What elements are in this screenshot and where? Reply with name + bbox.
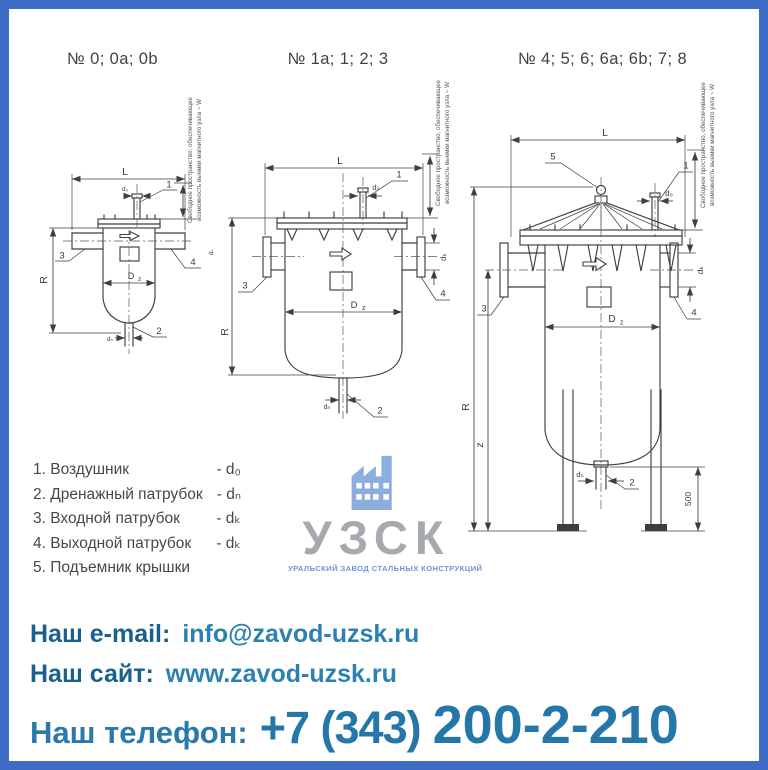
legend-item-2: 2. Дренажный патрубок - dₙ xyxy=(33,483,241,508)
drain-nozzle: dₙ 2 xyxy=(576,461,639,489)
uzsk-logo: УЗСК УРАЛЬСКИЙ ЗАВОД СТАЛЬНЫХ КОНСТРУКЦИ… xyxy=(288,451,460,573)
note-line1: Свободное пространство, обеспечивающее xyxy=(435,79,442,206)
flow-arrow xyxy=(120,232,139,241)
drain-nozzle: dₙ 2 xyxy=(107,323,167,346)
callout-4: 4 xyxy=(440,289,445,300)
phone-label: Наш телефон: xyxy=(30,715,248,751)
dim-label-L: L xyxy=(602,127,608,139)
free-space-note: Свободное пространство, обеспечивающее в… xyxy=(682,81,716,230)
sight-glass xyxy=(120,247,139,261)
site-value: www.zavod-uzsk.ru xyxy=(166,660,397,689)
callout-3: 3 xyxy=(242,281,247,292)
drawing1-title: № 0; 0a; 0b xyxy=(20,50,205,69)
vent-nozzle: d₀ 1 xyxy=(122,180,177,229)
dim-label-z: z xyxy=(474,442,486,447)
parts-legend: 1. Воздушник - d₀ 2. Дренажный патрубок … xyxy=(33,458,241,581)
vent-nozzle: d₀ 1 xyxy=(344,170,408,230)
dim-label-D: D xyxy=(351,300,358,311)
dim-R: R xyxy=(219,218,336,375)
callout-3: 3 xyxy=(59,251,64,262)
dim-label-D-sub: z xyxy=(620,320,624,327)
phone-prefix: +7 (343) xyxy=(260,702,421,754)
legend-item-text: 3. Входной патрубок xyxy=(33,507,180,532)
phone-number: 200-2-210 xyxy=(433,694,679,756)
phone-row: Наш телефон: +7 (343) 200-2-210 xyxy=(30,694,679,756)
sight-glass xyxy=(587,287,611,307)
logo-name: УЗСК xyxy=(293,514,460,561)
legend-item-dim: - dₖ xyxy=(216,507,241,532)
callout-2: 2 xyxy=(377,406,382,417)
outlet-nozzle: dₖ 4 xyxy=(650,238,705,319)
inlet-nozzle: 3 xyxy=(238,237,304,292)
legend-item-1: 1. Воздушник - d₀ xyxy=(33,458,241,483)
drawing-filter-small: L Свободное пространство, обеспечивающее… xyxy=(25,80,220,380)
site-label: Наш сайт: xyxy=(30,660,154,689)
dim-label-dk: dₖ xyxy=(695,265,705,274)
dim-label-R: R xyxy=(460,403,472,411)
logo-tagline: УРАЛЬСКИЙ ЗАВОД СТАЛЬНЫХ КОНСТРУКЦИЙ xyxy=(288,564,460,573)
note-line2: возможность выемки магнитного узла ~ W xyxy=(444,82,451,204)
email-value: info@zavod-uzsk.ru xyxy=(182,620,419,649)
dim-label-d0: d₀ xyxy=(372,183,379,192)
legend-item-text: 5. Подъемник крышки xyxy=(33,556,190,581)
vessel-body xyxy=(285,173,402,419)
legend-item-3: 3. Входной патрубок - dₖ xyxy=(33,507,241,532)
dim-label-D-sub: z xyxy=(362,305,366,312)
dim-label-d0: d₀ xyxy=(122,186,129,193)
flow-arrow xyxy=(330,248,351,260)
dim-label-L: L xyxy=(122,166,128,178)
dim-R: R xyxy=(38,228,121,333)
dim-Dz: D z xyxy=(545,314,660,327)
callout-4: 4 xyxy=(691,308,696,319)
lid-flange xyxy=(98,215,160,228)
callout-4: 4 xyxy=(190,257,195,268)
factory-icon xyxy=(346,451,402,513)
dim-label-dk: dₖ xyxy=(209,249,215,255)
inlet-nozzle: 3 xyxy=(477,243,562,315)
drawing-filter-large: L Свободное пространство, обеспечивающее… xyxy=(465,57,765,572)
callout-5: 5 xyxy=(550,152,555,163)
callout-1: 1 xyxy=(396,170,401,181)
drawing-filter-medium: L Свободное пространство, обеспечивающее… xyxy=(224,57,464,429)
legend-item-text: 4. Выходной патрубок xyxy=(33,532,191,557)
free-space-note: Свободное пространство, обеспечивающее в… xyxy=(407,79,451,218)
vessel-body xyxy=(545,177,660,509)
dim-label-dk: dₖ xyxy=(439,253,448,261)
dim-label-R: R xyxy=(38,276,50,284)
note-line1: Свободное пространство, обеспечивающее xyxy=(187,96,194,223)
site-row: Наш сайт: www.zavod-uzsk.ru xyxy=(30,660,397,689)
dim-label-D: D xyxy=(128,271,135,281)
callout-2: 2 xyxy=(156,326,161,337)
legend-item-dim: - d₀ xyxy=(216,458,241,483)
drain-nozzle: dₙ 2 xyxy=(324,378,388,417)
note-line2: возможность выемки магнитного узла ~ W xyxy=(196,99,203,221)
email-label: Наш e-mail: xyxy=(30,620,170,649)
dim-label-dn: dₙ xyxy=(107,336,114,343)
callout-3: 3 xyxy=(481,304,486,315)
legend-item-text: 1. Воздушник xyxy=(33,458,129,483)
note-line2: возможность выемки магнитного узла ~ W xyxy=(709,84,716,206)
sight-glass xyxy=(330,272,352,290)
flyer-page: { "frame": { "border_color": "#3d6cc4", … xyxy=(0,0,768,770)
dim-L: L xyxy=(511,127,685,237)
dim-label-L: L xyxy=(337,155,343,167)
note-line1: Свободное пространство, обеспечивающее xyxy=(700,81,707,208)
dim-500: 500 xyxy=(610,467,705,531)
dim-Dz: D z xyxy=(285,300,402,312)
dim-label-500: 500 xyxy=(683,492,693,506)
free-space-note: Свободное пространство, обеспечивающее в… xyxy=(160,96,203,223)
dim-label-R: R xyxy=(219,328,231,336)
flow-arrow xyxy=(583,258,606,271)
support-legs xyxy=(557,390,667,531)
legend-item-dim: - dₖ xyxy=(216,532,241,557)
dim-label-dn: dₙ xyxy=(576,470,583,479)
legend-item-5: 5. Подъемник крышки xyxy=(33,556,241,581)
legend-item-text: 2. Дренажный патрубок xyxy=(33,483,203,508)
vent-nozzle: d₀ 1 xyxy=(637,161,693,238)
dim-label-D-sub: z xyxy=(138,276,141,283)
legend-item-dim: - dₙ xyxy=(217,483,241,508)
dim-label-dn: dₙ xyxy=(324,404,331,411)
legend-item-4: 4. Выходной патрубок - dₖ xyxy=(33,532,241,557)
callout-1: 1 xyxy=(166,180,171,191)
email-row: Наш e-mail: info@zavod-uzsk.ru xyxy=(30,620,419,649)
lid-flange xyxy=(277,212,407,240)
inlet-pipe: 3 xyxy=(55,233,103,262)
callout-2: 2 xyxy=(629,478,634,489)
callout-1: 1 xyxy=(683,161,688,172)
dim-L: L xyxy=(72,166,185,230)
dim-label-D: D xyxy=(608,314,615,325)
